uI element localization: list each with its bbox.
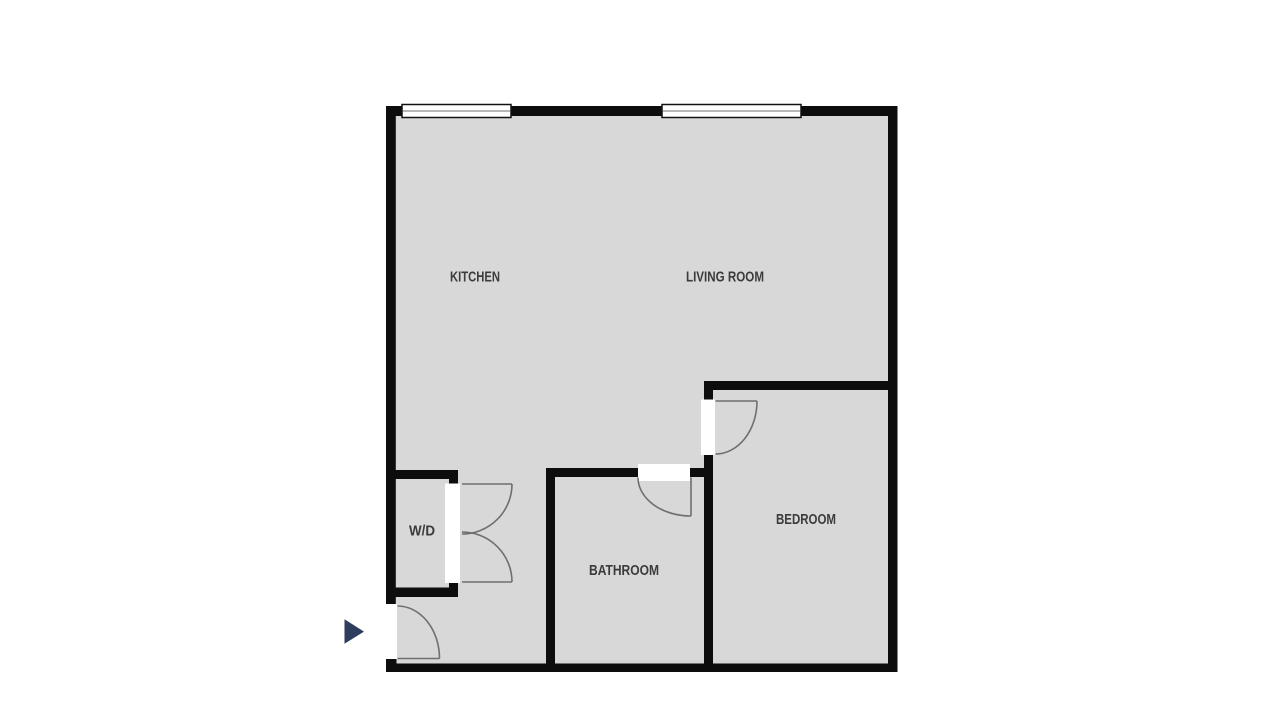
svg-text:BATHROOM: BATHROOM [589, 563, 659, 579]
svg-text:LIVING ROOM: LIVING ROOM [686, 270, 764, 286]
svg-text:KITCHEN: KITCHEN [450, 270, 500, 286]
svg-text:W/D: W/D [409, 524, 435, 540]
svg-text:BEDROOM: BEDROOM [776, 512, 836, 528]
